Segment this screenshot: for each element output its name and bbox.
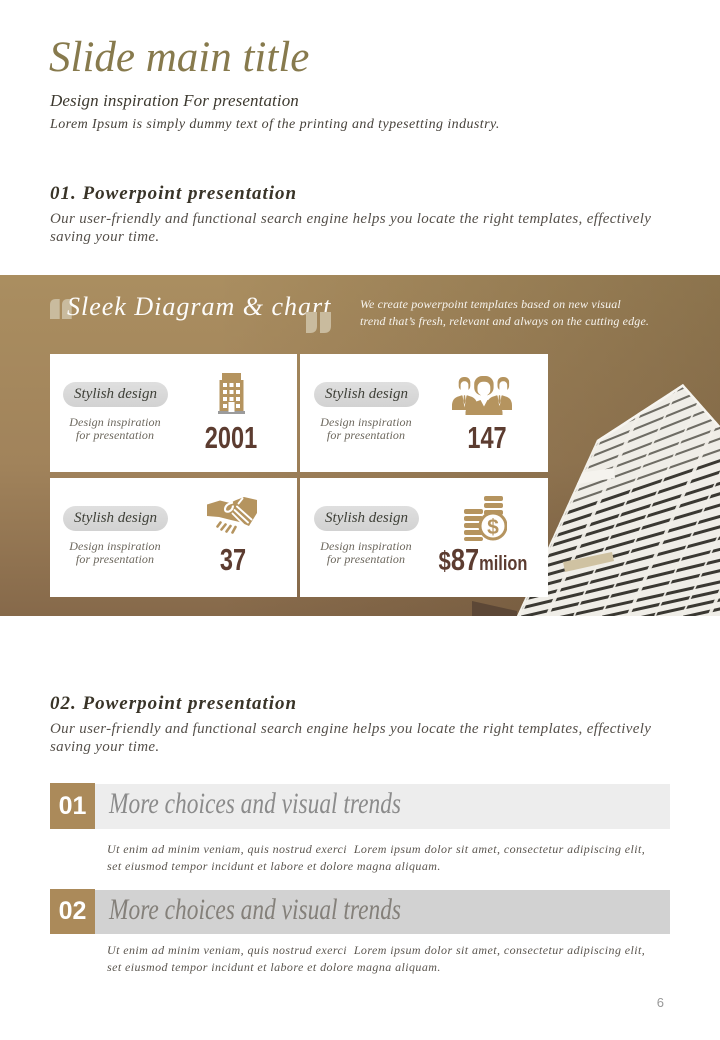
svg-text:$: $: [487, 516, 499, 539]
